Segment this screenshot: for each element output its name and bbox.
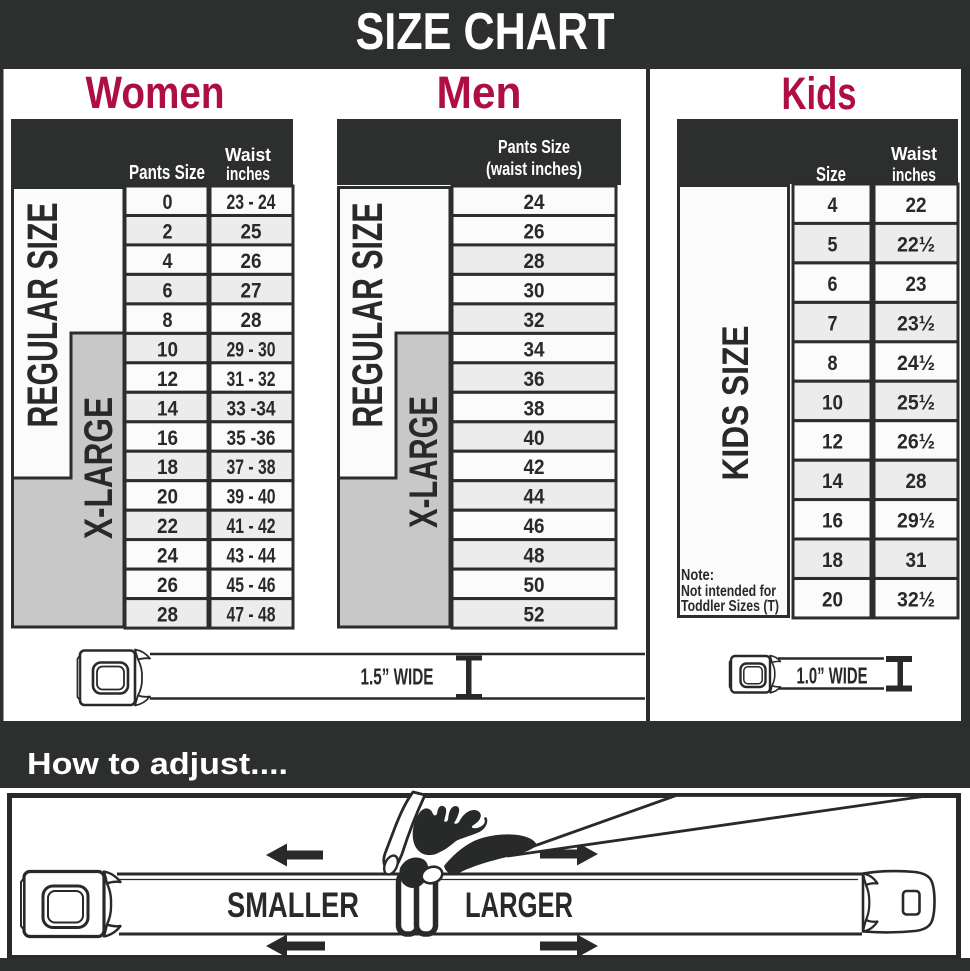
svg-text:35 -36: 35 -36 (227, 427, 276, 450)
svg-text:22: 22 (157, 515, 178, 538)
svg-text:41 - 42: 41 - 42 (227, 515, 276, 538)
svg-text:4: 4 (163, 250, 173, 273)
svg-text:18: 18 (822, 549, 843, 572)
svg-text:6: 6 (828, 273, 838, 296)
svg-text:(waist inches): (waist inches) (486, 159, 582, 179)
svg-text:26: 26 (157, 574, 178, 597)
svg-text:22½: 22½ (897, 233, 935, 256)
svg-text:26: 26 (241, 250, 262, 273)
svg-text:KIDS SIZE: KIDS SIZE (715, 326, 756, 481)
svg-text:26: 26 (524, 220, 545, 243)
svg-text:22: 22 (906, 194, 927, 217)
svg-text:42: 42 (524, 456, 545, 479)
svg-text:52: 52 (524, 604, 545, 627)
svg-text:31: 31 (906, 549, 927, 572)
svg-text:43 - 44: 43 - 44 (227, 545, 276, 568)
svg-text:4: 4 (828, 194, 838, 217)
svg-text:31 - 32: 31 - 32 (227, 368, 276, 391)
svg-text:37 - 38: 37 - 38 (227, 456, 276, 479)
svg-text:Waist: Waist (225, 145, 271, 165)
svg-text:28: 28 (906, 470, 927, 493)
svg-text:10: 10 (822, 391, 843, 414)
svg-text:50: 50 (524, 574, 545, 597)
svg-text:1.0” WIDE: 1.0” WIDE (797, 663, 868, 689)
svg-text:Pants Size: Pants Size (129, 162, 205, 184)
svg-text:LARGER: LARGER (465, 886, 573, 925)
svg-text:28: 28 (524, 250, 545, 273)
svg-text:16: 16 (157, 427, 178, 450)
svg-text:44: 44 (524, 486, 545, 509)
svg-text:X-LARGE: X-LARGE (77, 397, 121, 539)
svg-text:23 - 24: 23 - 24 (227, 191, 276, 214)
svg-text:How to adjust....: How to adjust.... (27, 746, 288, 781)
svg-text:39 - 40: 39 - 40 (227, 486, 276, 509)
svg-text:23: 23 (906, 273, 927, 296)
svg-text:23½: 23½ (897, 312, 935, 335)
svg-text:26½: 26½ (897, 431, 935, 454)
svg-text:38: 38 (524, 397, 545, 420)
svg-text:32: 32 (524, 309, 545, 332)
svg-text:REGULAR SIZE: REGULAR SIZE (344, 203, 392, 428)
svg-text:10: 10 (157, 338, 178, 361)
svg-text:30: 30 (524, 279, 545, 302)
svg-text:inches: inches (226, 164, 270, 184)
svg-text:0: 0 (163, 191, 173, 214)
svg-text:12: 12 (822, 431, 843, 454)
svg-text:24: 24 (524, 191, 545, 214)
svg-text:47 - 48: 47 - 48 (227, 604, 276, 627)
svg-text:48: 48 (524, 545, 545, 568)
svg-text:36: 36 (524, 368, 545, 391)
svg-text:45 - 46: 45 - 46 (227, 574, 276, 597)
svg-text:25½: 25½ (897, 391, 935, 414)
svg-text:29½: 29½ (897, 510, 935, 533)
svg-text:inches: inches (892, 165, 936, 185)
svg-text:5: 5 (828, 233, 838, 256)
svg-text:2: 2 (163, 220, 173, 243)
svg-text:46: 46 (524, 515, 545, 538)
svg-text:SMALLER: SMALLER (227, 886, 359, 925)
svg-text:1.5” WIDE: 1.5” WIDE (361, 664, 434, 690)
svg-text:12: 12 (157, 368, 178, 391)
svg-text:27: 27 (241, 279, 262, 302)
svg-text:14: 14 (822, 470, 843, 493)
svg-text:X-LARGE: X-LARGE (402, 396, 446, 528)
svg-text:Toddler Sizes (T): Toddler Sizes (T) (681, 598, 779, 615)
svg-text:28: 28 (157, 604, 178, 627)
svg-text:40: 40 (524, 427, 545, 450)
svg-text:Women: Women (86, 67, 225, 118)
svg-text:7: 7 (828, 312, 838, 335)
svg-text:8: 8 (828, 352, 838, 375)
svg-text:Pants Size: Pants Size (498, 137, 570, 157)
svg-text:8: 8 (163, 309, 173, 332)
svg-text:28: 28 (241, 309, 262, 332)
svg-text:24: 24 (157, 545, 178, 568)
svg-text:6: 6 (163, 279, 173, 302)
svg-text:REGULAR SIZE: REGULAR SIZE (19, 203, 67, 428)
svg-text:16: 16 (822, 510, 843, 533)
svg-text:33 -34: 33 -34 (227, 397, 276, 420)
svg-text:20: 20 (822, 589, 843, 612)
svg-text:Men: Men (437, 67, 522, 118)
svg-text:SIZE CHART: SIZE CHART (356, 3, 615, 61)
svg-text:20: 20 (157, 486, 178, 509)
svg-text:25: 25 (241, 220, 262, 243)
svg-text:Kids: Kids (782, 68, 857, 119)
svg-text:Waist: Waist (891, 144, 937, 164)
svg-text:34: 34 (524, 338, 545, 361)
svg-text:29 - 30: 29 - 30 (227, 338, 276, 361)
svg-text:18: 18 (157, 456, 178, 479)
svg-text:14: 14 (157, 397, 178, 420)
svg-text:24½: 24½ (897, 352, 935, 375)
svg-text:Note:: Note: (681, 567, 714, 584)
svg-text:32½: 32½ (897, 589, 935, 612)
